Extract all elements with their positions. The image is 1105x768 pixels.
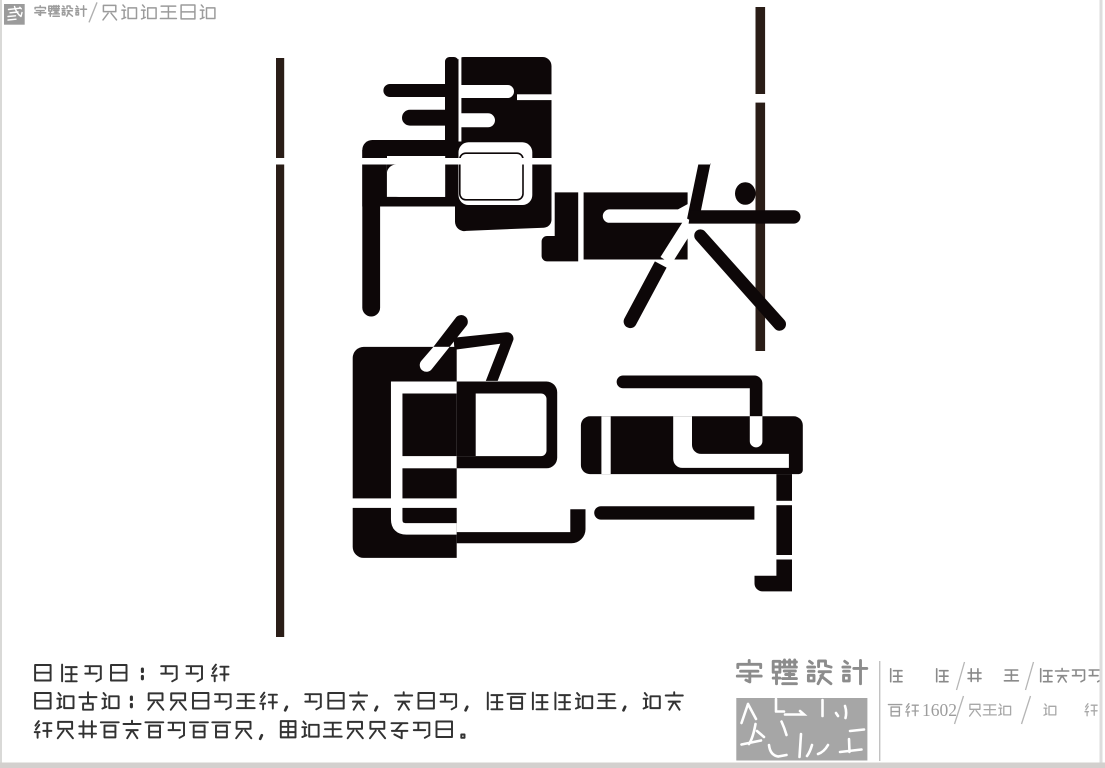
svg-text:1602: 1602 (922, 700, 957, 720)
